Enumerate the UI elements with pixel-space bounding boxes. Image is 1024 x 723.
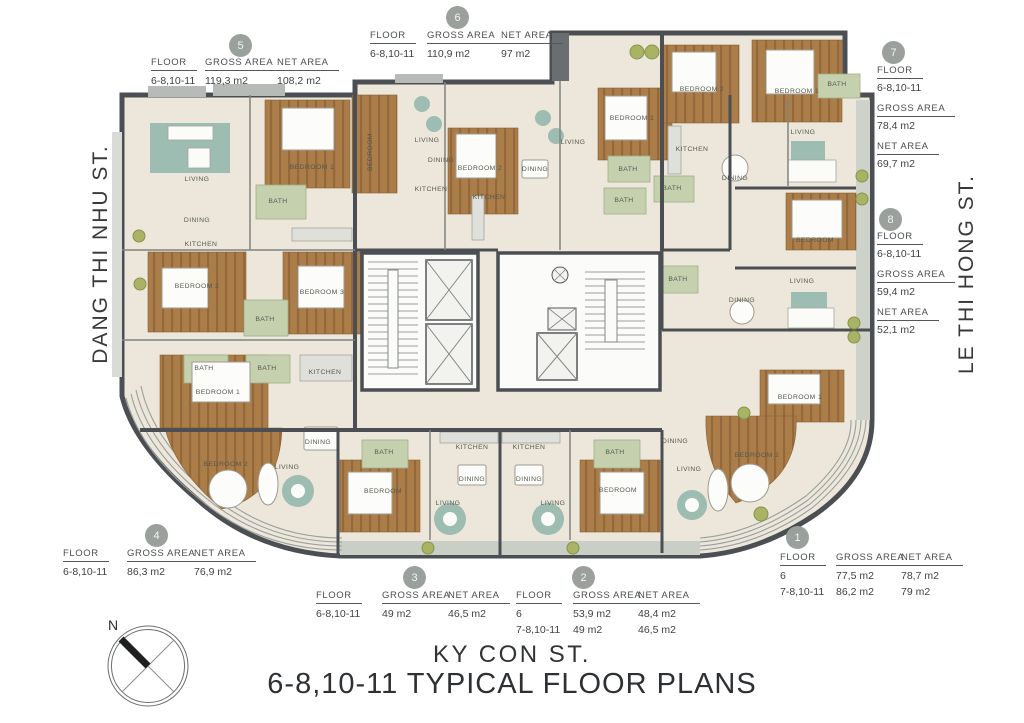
gross-area-value: 59,4 m2	[877, 283, 957, 298]
room-label: LIVING	[275, 464, 300, 471]
room-label: BEDROOM 3	[300, 289, 344, 296]
gross-area-value: 49 m2	[382, 604, 448, 620]
room-label: BATH	[268, 198, 287, 205]
gross-area-header: GROSS AREA	[836, 552, 901, 566]
compass-needle	[121, 639, 148, 666]
room-label: LIVING	[185, 176, 210, 183]
floor-value: 7-8,10-11	[780, 582, 836, 598]
unit-6-stats: FLOOR GROSS AREA NET AREA 6-8,10-11 110,…	[370, 30, 563, 60]
room-label: BEDROOM	[367, 133, 374, 171]
floor-value: 6-8,10-11	[370, 44, 427, 60]
room-label: BATH	[618, 166, 637, 173]
gross-area-value: 49 m2	[573, 620, 638, 636]
room-label: DINING	[722, 175, 748, 182]
room-label: DINING	[184, 217, 210, 224]
floor-header: FLOOR	[516, 590, 573, 604]
net-area-value: 46,5 m2	[638, 620, 696, 636]
net-area-header: NET AREA	[194, 548, 256, 562]
floor-header: FLOOR	[370, 30, 427, 44]
gross-area-value: 53,9 m2	[573, 604, 638, 620]
gross-area-value: 78,4 m2	[877, 117, 957, 132]
unit-5-stats: FLOOR GROSS AREA NET AREA 6-8,10-11 119,…	[151, 57, 341, 87]
floor-value: 6-8,10-11	[877, 245, 957, 260]
net-area-header: NET AREA	[877, 307, 957, 321]
room-label: LIVING	[790, 278, 815, 285]
room-label: DINING	[305, 439, 331, 446]
unit-1-badge: 1	[786, 526, 809, 549]
room-label: DINING	[428, 157, 454, 164]
net-area-value: 79 m2	[901, 582, 961, 598]
gross-area-header: GROSS AREA	[127, 548, 194, 562]
net-area-header: NET AREA	[448, 590, 508, 604]
room-label: BEDROOM 2	[175, 283, 219, 290]
room-label: LIVING	[415, 137, 440, 144]
room-label: BATH	[255, 316, 274, 323]
gross-area-value: 86,3 m2	[127, 562, 194, 578]
room-label: BEDROOM 2	[458, 165, 502, 172]
room-label: BEDROOM	[364, 488, 402, 495]
room-label: BEDROOM 1	[196, 389, 240, 396]
unit-2-badge: 2	[572, 566, 595, 589]
room-label: BATH	[605, 449, 624, 456]
room-label: BEDROOM 2	[204, 461, 248, 468]
room-label: KITCHEN	[456, 444, 489, 451]
unit-8-badge: 8	[879, 208, 902, 231]
gross-area-value: 86,2 m2	[836, 582, 901, 598]
room-label: BEDROOM 2	[735, 452, 779, 459]
room-label: LIVING	[561, 139, 586, 146]
floor-header: FLOOR	[151, 57, 205, 71]
floor-header: FLOOR	[877, 231, 957, 245]
room-label: BEDROOM 1	[775, 88, 819, 95]
unit-3-badge: 3	[403, 566, 426, 589]
room-label: KITCHEN	[676, 146, 709, 153]
unit-8-stats: FLOOR 6-8,10-11 GROSS AREA 59,4 m2 NET A…	[877, 231, 957, 336]
room-label: BEDROOM 1	[610, 115, 654, 122]
floor-value: 7-8,10-11	[516, 620, 573, 636]
room-label: DINING	[662, 438, 688, 445]
room-label: LIVING	[541, 500, 566, 507]
room-label: KITCHEN	[309, 369, 342, 376]
compass-rose: N	[100, 614, 192, 709]
unit-4-badge: 4	[145, 524, 168, 547]
floor-value: 6	[516, 604, 573, 620]
net-area-header: NET AREA	[638, 590, 696, 604]
room-label: BEDROOM 1	[290, 164, 334, 171]
unit-6-badge: 6	[446, 6, 469, 29]
net-area-value: 108,2 m2	[277, 71, 341, 87]
street-label-left: DANG THI NHU ST.	[89, 104, 113, 404]
unit-5-badge: 5	[229, 34, 252, 57]
net-area-header: NET AREA	[501, 30, 563, 44]
net-area-header: NET AREA	[901, 552, 961, 566]
unit-7-stats: FLOOR 6-8,10-11 GROSS AREA 78,4 m2 NET A…	[877, 65, 957, 170]
page-title: 6-8,10-11 TYPICAL FLOOR PLANS	[162, 668, 862, 701]
room-label: LIVING	[677, 466, 702, 473]
unit-4-stats: FLOOR GROSS AREA NET AREA 6-8,10-11 86,3…	[63, 548, 256, 578]
north-label: N	[108, 617, 118, 633]
gross-area-header: GROSS AREA	[877, 269, 957, 283]
gross-area-header: GROSS AREA	[573, 590, 638, 604]
net-area-value: 46,5 m2	[448, 604, 508, 620]
room-label: DINING	[522, 166, 548, 173]
net-area-header: NET AREA	[277, 57, 341, 71]
net-area-value: 52,1 m2	[877, 321, 957, 336]
street-label-right: LE THI HONG ST.	[955, 124, 979, 424]
gross-area-header: GROSS AREA	[427, 30, 501, 44]
room-label: BATH	[662, 185, 681, 192]
room-label: BEDROOM 1	[778, 394, 822, 401]
floor-value: 6-8,10-11	[151, 71, 205, 87]
room-label: LIVING	[436, 500, 461, 507]
gross-area-header: GROSS AREA	[205, 57, 277, 71]
room-label: BATH	[257, 365, 276, 372]
room-label: LIVING	[791, 129, 816, 136]
gross-area-header: GROSS AREA	[382, 590, 448, 604]
gross-area-value: 119,3 m2	[205, 71, 277, 87]
room-label: BATH	[614, 197, 633, 204]
floor-value: 6-8,10-11	[63, 562, 127, 578]
room-label: BATH	[668, 276, 687, 283]
floor-value: 6-8,10-11	[316, 604, 382, 620]
room-label: KITCHEN	[473, 194, 506, 201]
room-label: KITCHEN	[415, 186, 448, 193]
room-label: BATH	[194, 365, 213, 372]
unit-7-badge: 7	[882, 41, 905, 64]
street-label-bottom: KY CON ST.	[262, 641, 762, 669]
gross-area-value: 77,5 m2	[836, 566, 901, 582]
floor-header: FLOOR	[316, 590, 382, 604]
room-label: BEDROOM	[796, 237, 834, 244]
room-label: KITCHEN	[513, 444, 546, 451]
net-area-value: 76,9 m2	[194, 562, 256, 578]
net-area-value: 69,7 m2	[877, 155, 957, 170]
net-area-header: NET AREA	[877, 141, 957, 155]
net-area-value: 48,4 m2	[638, 604, 696, 620]
stair-elevator-cores	[362, 253, 660, 390]
gross-area-header: GROSS AREA	[877, 103, 957, 117]
room-label: BATH	[827, 81, 846, 88]
room-label: DINING	[729, 297, 755, 304]
floor-header: FLOOR	[63, 548, 127, 562]
unit-2-stats: FLOOR GROSS AREA NET AREA 6 53,9 m2 48,4…	[516, 590, 696, 636]
net-area-value: 78,7 m2	[901, 566, 961, 582]
room-label: KITCHEN	[185, 241, 218, 248]
floor-value: 6-8,10-11	[877, 79, 957, 94]
gross-area-value: 110,9 m2	[427, 44, 501, 60]
floor-header: FLOOR	[780, 552, 836, 566]
room-label: DINING	[459, 476, 485, 483]
floor-plan-page: { "title": { "street_bottom": "KY CON ST…	[0, 0, 1024, 723]
room-label: DINING	[516, 476, 542, 483]
room-label: BEDROOM 2	[680, 86, 724, 93]
unit-1-stats: FLOOR GROSS AREA NET AREA 6 77,5 m2 78,7…	[780, 552, 961, 598]
room-label: BATH	[374, 449, 393, 456]
net-area-value: 97 m2	[501, 44, 563, 60]
unit-3-stats: FLOOR GROSS AREA NET AREA 6-8,10-11 49 m…	[316, 590, 508, 620]
floor-value: 6	[780, 566, 836, 582]
floor-header: FLOOR	[877, 65, 957, 79]
room-label: BEDROOM	[599, 487, 637, 494]
